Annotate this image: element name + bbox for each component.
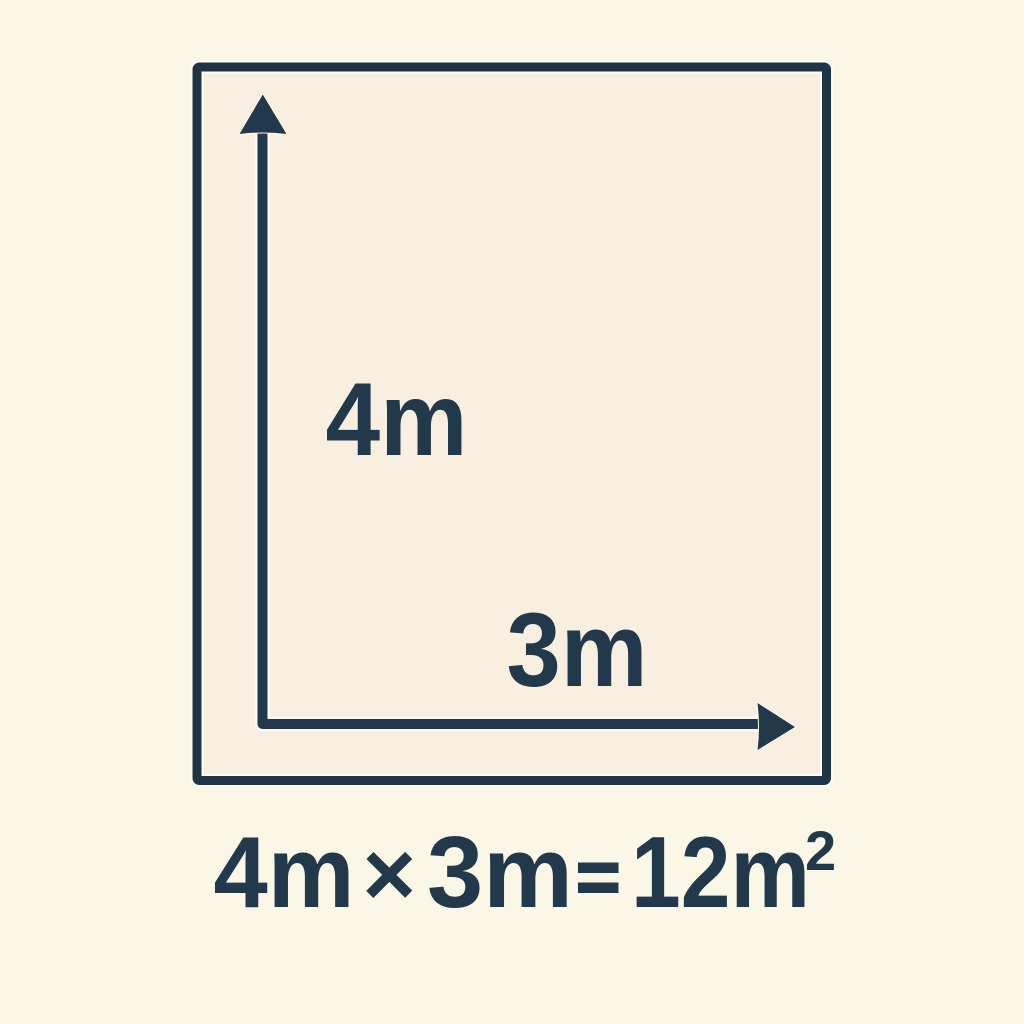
svg-text:3m: 3m — [427, 817, 573, 929]
svg-text:4m: 4m — [214, 817, 355, 929]
svg-text:3m: 3m — [507, 592, 648, 709]
svg-text:4m: 4m — [326, 362, 468, 478]
svg-text:12m: 12m — [631, 817, 810, 929]
svg-text:×: × — [362, 824, 416, 926]
svg-text:2: 2 — [805, 819, 836, 882]
